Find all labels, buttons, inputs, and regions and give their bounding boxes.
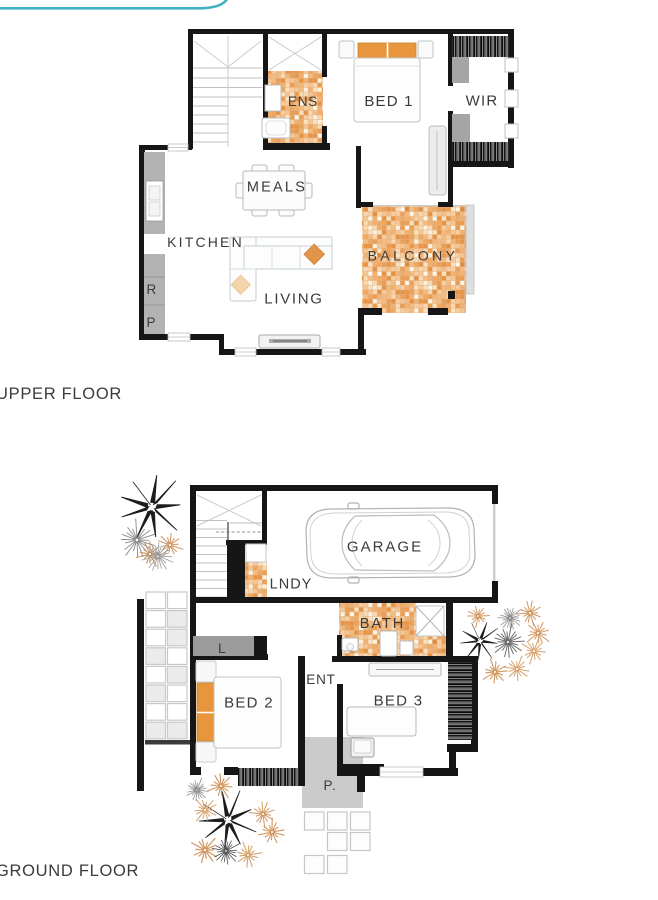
svg-text:L: L [218, 640, 226, 656]
svg-text:KITCHEN: KITCHEN [167, 234, 244, 250]
svg-text:R: R [147, 282, 158, 297]
svg-text:LIVING: LIVING [264, 291, 323, 308]
svg-text:WIR: WIR [466, 93, 499, 110]
svg-text:ENT: ENT [306, 672, 335, 687]
svg-text:P: P [147, 315, 157, 330]
svg-text:P.: P. [324, 778, 337, 793]
svg-text:BED 1: BED 1 [364, 93, 413, 110]
svg-text:BALCONY: BALCONY [368, 248, 459, 264]
svg-text:GARAGE: GARAGE [347, 539, 423, 556]
svg-text:BED 2: BED 2 [224, 695, 274, 712]
svg-text:LNDY: LNDY [270, 577, 313, 593]
svg-text:BED 3: BED 3 [374, 693, 424, 710]
svg-text:ENS: ENS [288, 94, 318, 109]
svg-text:MEALS: MEALS [247, 180, 307, 196]
svg-text:UPPER FLOOR: UPPER FLOOR [0, 385, 122, 403]
svg-text:GROUND FLOOR: GROUND FLOOR [0, 862, 139, 880]
svg-text:BATH: BATH [360, 616, 406, 632]
